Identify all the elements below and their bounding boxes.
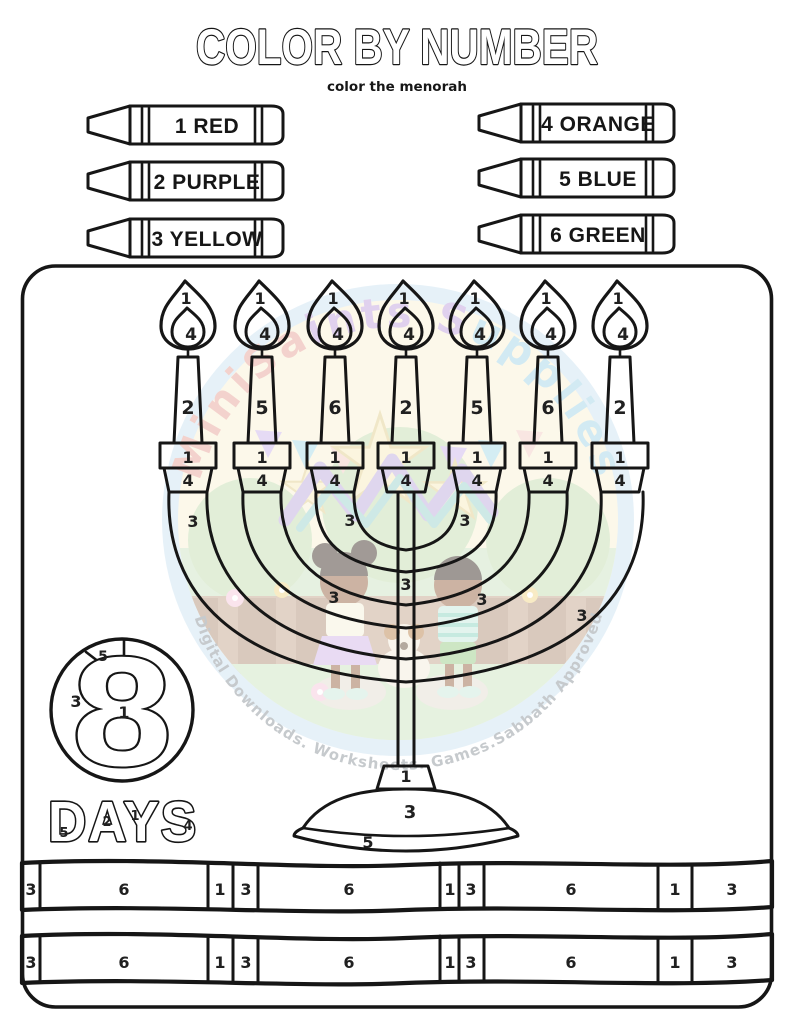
days-letter-number: 5 [59,826,68,841]
band-number: 1 [669,880,680,899]
flame-inner-number: 4 [259,325,271,345]
days-word: DAYS [48,790,198,854]
cup-number: 4 [329,471,340,490]
crayon-1-red: 1 RED [88,106,283,144]
candle-number: 6 [328,397,341,419]
band-number: 6 [565,880,576,899]
flame-outer-number: 1 [540,289,551,308]
crayon-label: 4 ORANGE [541,113,655,136]
days-letter-number: 1 [130,809,139,824]
flame-inner-number: 4 [332,325,344,345]
page-subtitle: color the menorah [327,79,467,95]
band-number: 3 [726,880,737,899]
band-number: 3 [25,953,36,972]
base-dome-number: 3 [404,802,417,823]
band-number: 3 [465,953,476,972]
eight-days-graphic: 8 5 3 1 DAYS 5 2 1 4 [48,625,198,854]
crayon-label: 5 BLUE [559,168,637,191]
bottom-band-1: 3 6 1 3 6 1 3 6 1 3 [22,861,772,911]
candle-number: 2 [613,397,626,419]
flame-outer-number: 1 [398,289,409,308]
holder-number: 1 [329,448,340,467]
candle-number: 5 [470,397,483,419]
holder-number: 1 [614,448,625,467]
arm-number: 3 [328,588,339,607]
candle-number: 6 [541,397,554,419]
menorah-base: 1 3 5 [294,766,518,852]
band-number: 1 [444,880,455,899]
band-number: 3 [465,880,476,899]
worksheet-page: MiniSaints Supplies Digital Downloads. W… [0,0,794,1028]
flame-outer-number: 1 [254,289,265,308]
bottom-band-2: 3 6 1 3 6 1 3 6 1 3 [22,934,772,984]
flame-inner-number: 4 [617,325,629,345]
cup-number: 4 [182,471,193,490]
crayon-6-green: 6 GREEN [479,215,674,253]
flame-outer-number: 1 [327,289,338,308]
arm-number: 3 [187,512,198,531]
crayon-label: 1 RED [175,115,239,138]
arm-number: 3 [459,511,470,530]
band-number: 3 [25,880,36,899]
flame-outer-number: 1 [469,289,480,308]
days-letter-number: 4 [183,819,192,834]
band-number: 6 [565,953,576,972]
eight-center-number: 1 [118,703,129,722]
days-letter-number: 2 [102,815,111,830]
page-title: COLOR BY NUMBER [196,19,598,75]
cup-number: 4 [400,471,411,490]
crayon-5-blue: 5 BLUE [479,159,674,197]
band-number: 6 [343,880,354,899]
band-number: 1 [669,953,680,972]
band-number: 6 [343,953,354,972]
candle-number: 2 [399,397,412,419]
band-number: 3 [240,880,251,899]
band-number: 3 [240,953,251,972]
arm-number: 3 [344,511,355,530]
holder-number: 1 [182,448,193,467]
wedge-number: 5 [98,649,108,665]
crayon-label: 3 YELLOW [152,228,263,251]
candle-number: 5 [255,397,268,419]
holder-number: 1 [471,448,482,467]
base-rim-number: 5 [362,833,373,852]
crayon-label: 2 PURPLE [154,171,261,194]
cup-number: 4 [542,471,553,490]
holder-number: 1 [400,448,411,467]
band-number: 1 [214,953,225,972]
candle-number: 2 [181,397,194,419]
holder-number: 1 [256,448,267,467]
crayon-legend: 1 RED 2 PURPLE 3 YELLOW 4 ORANGE 5 BLUE … [88,104,674,257]
crayon-4-orange: 4 ORANGE [479,104,674,142]
flame-inner-number: 4 [403,325,415,345]
arm-number: 3 [476,590,487,609]
cup-number: 4 [471,471,482,490]
crayon-label: 6 GREEN [550,224,646,247]
base-neck-number: 1 [400,767,411,786]
band-number: 3 [726,953,737,972]
crayon-3-yellow: 3 YELLOW [88,219,283,257]
cup-number: 4 [614,471,625,490]
arm-number: 3 [576,606,587,625]
holder-number: 1 [542,448,553,467]
band-number: 1 [444,953,455,972]
cup-number: 4 [256,471,267,490]
flame-outer-number: 1 [180,289,191,308]
crayon-2-purple: 2 PURPLE [88,162,283,200]
band-number: 6 [118,953,129,972]
band-number: 6 [118,880,129,899]
flame-inner-number: 4 [185,325,197,345]
circle-left-number: 3 [70,692,81,711]
flame-inner-number: 4 [474,325,486,345]
flame-outer-number: 1 [612,289,623,308]
stem-number: 3 [400,575,411,594]
flame-inner-number: 4 [545,325,557,345]
band-number: 1 [214,880,225,899]
